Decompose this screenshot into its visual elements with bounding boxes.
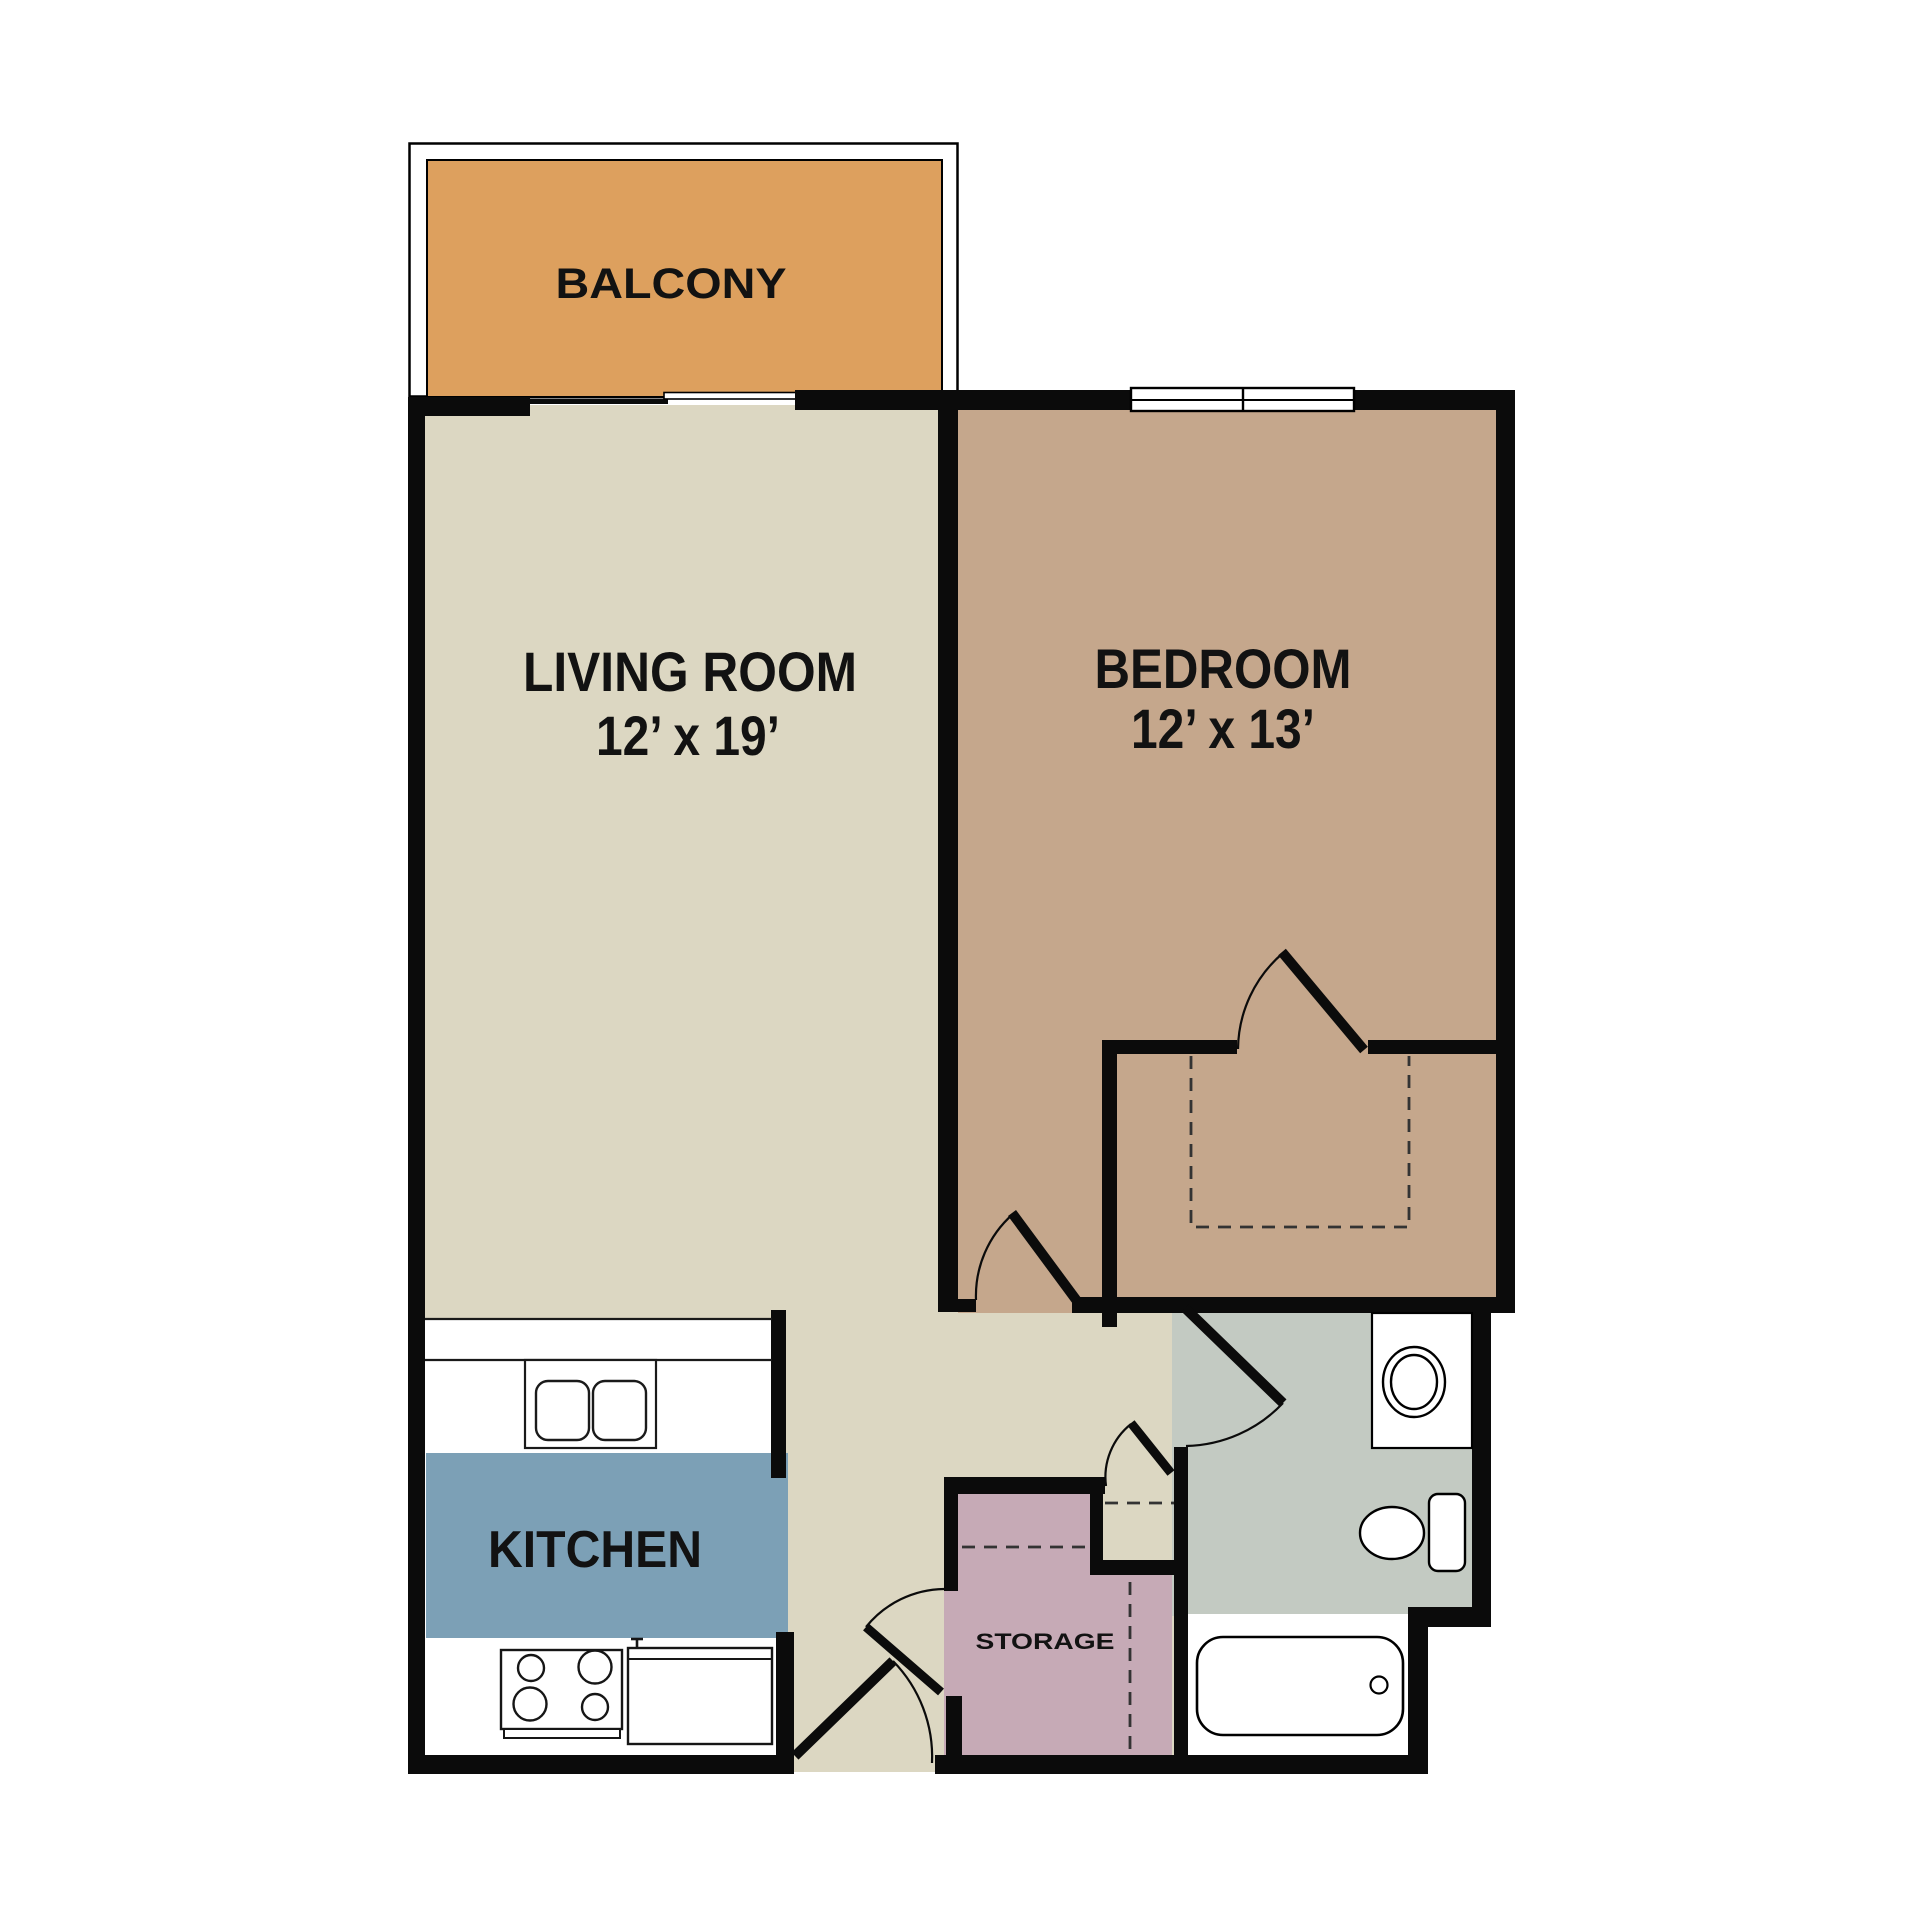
svg-text:BALCONY: BALCONY (556, 260, 787, 308)
svg-text:STORAGE: STORAGE (976, 1629, 1115, 1654)
svg-text:LIVING ROOM: LIVING ROOM (523, 641, 857, 703)
svg-text:12’ x 19’: 12’ x 19’ (596, 705, 780, 767)
svg-text:BEDROOM: BEDROOM (1095, 638, 1352, 700)
svg-text:12’ x 13’: 12’ x 13’ (1131, 698, 1315, 760)
svg-text:KITCHEN: KITCHEN (488, 1521, 702, 1579)
